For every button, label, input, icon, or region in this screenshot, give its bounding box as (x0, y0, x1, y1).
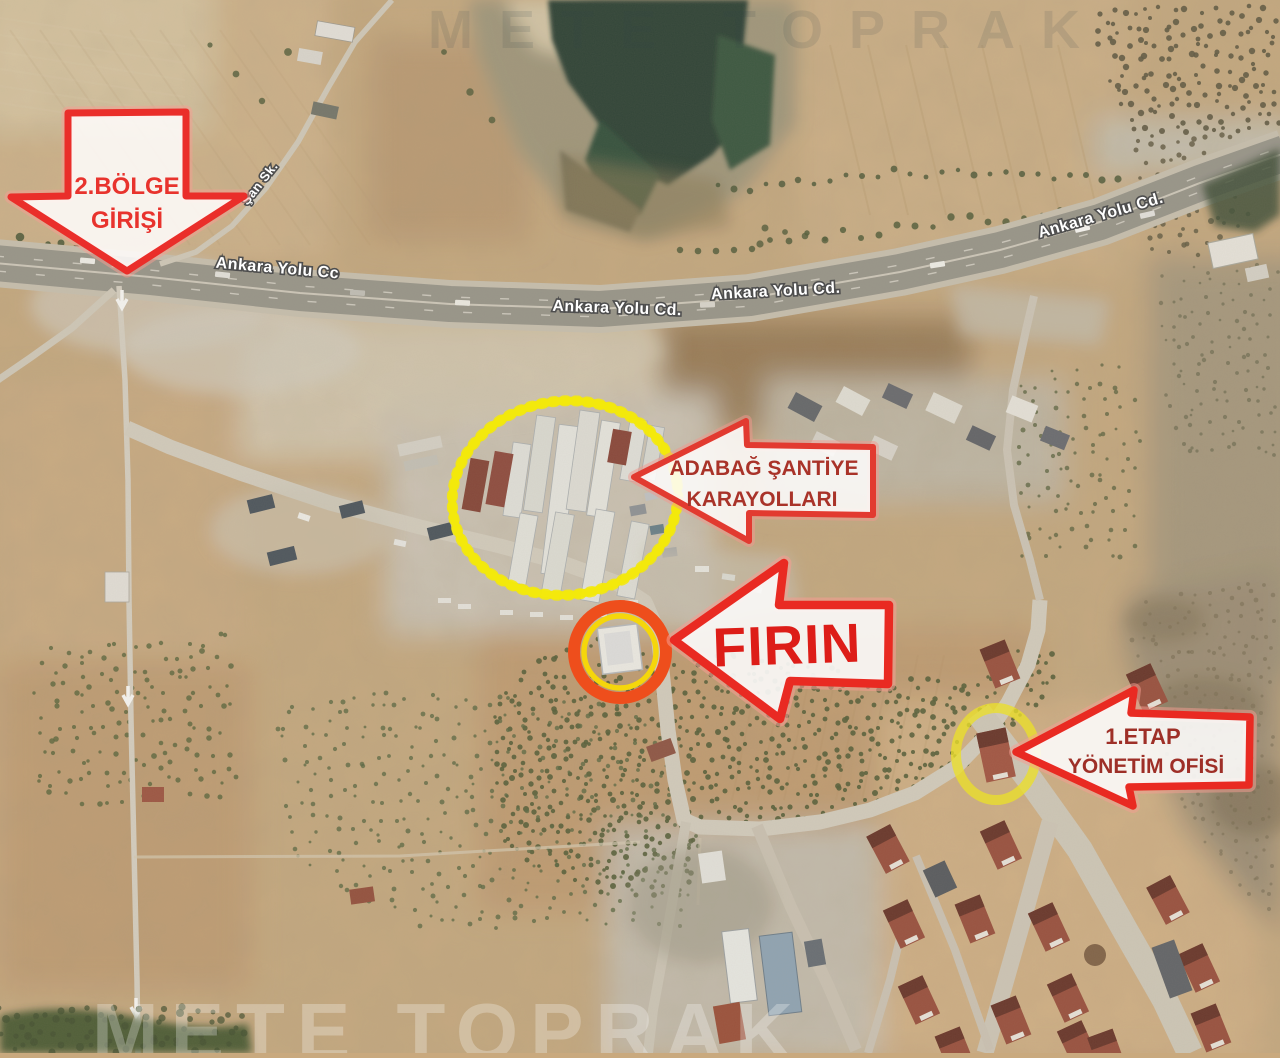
svg-text:YÖNETİM OFİSİ: YÖNETİM OFİSİ (1068, 755, 1224, 778)
svg-text:KARAYOLLARI: KARAYOLLARI (687, 488, 838, 511)
svg-text:ADABAĞ ŞANTİYE: ADABAĞ ŞANTİYE (669, 456, 858, 480)
svg-text:1.ETAP: 1.ETAP (1105, 724, 1180, 749)
svg-text:FIRIN: FIRIN (712, 611, 863, 678)
svg-text:2.BÖLGE: 2.BÖLGE (74, 173, 179, 200)
svg-text:GİRİŞİ: GİRİŞİ (91, 207, 163, 234)
svg-text:METE TOPRAK: METE TOPRAK (92, 987, 805, 1053)
svg-text:METE TOPRAK: METE TOPRAK (428, 0, 1106, 60)
